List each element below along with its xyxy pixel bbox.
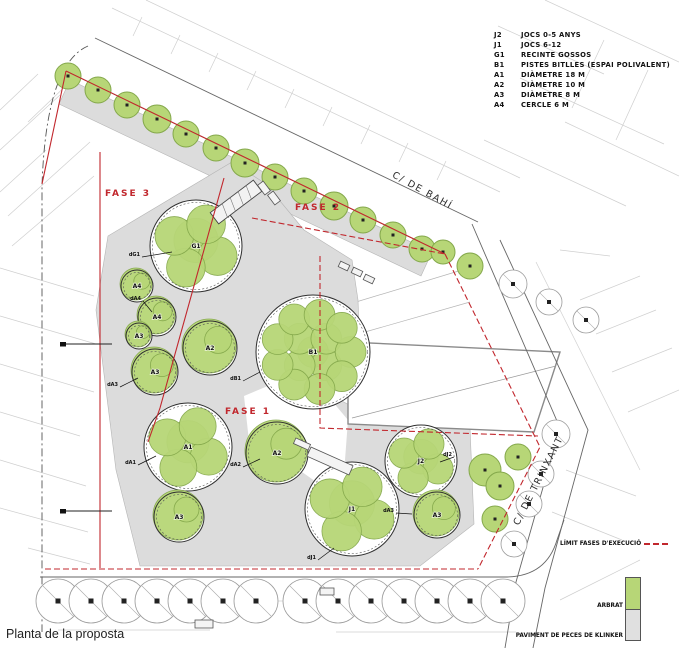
bench bbox=[195, 620, 213, 628]
feature-a3: A3 bbox=[131, 347, 178, 395]
legend-label: DIÀMETRE 8 M bbox=[521, 91, 580, 99]
legend-row: J1JOCS 6-12 bbox=[494, 40, 670, 50]
feature-label: A2 bbox=[273, 450, 282, 457]
legend: J2JOCS 0-5 ANYS J1JOCS 6-12 G1RECINTE GO… bbox=[494, 30, 670, 110]
legend-label: JOCS 0-5 ANYS bbox=[521, 31, 581, 39]
legend-row: J2JOCS 0-5 ANYS bbox=[494, 30, 670, 40]
legend-label: PISTES BITLLES (ESPAI POLIVALENT) bbox=[521, 61, 670, 69]
feature-label: A4 bbox=[153, 314, 162, 321]
legend-row: G1RECINTE GOSSOS bbox=[494, 50, 670, 60]
phase-2-label: FASE 2 bbox=[295, 203, 341, 213]
feature-b1: B1 bbox=[256, 295, 370, 409]
legend-label: CERCLE 6 M bbox=[521, 101, 569, 109]
legend-code: A3 bbox=[494, 90, 521, 100]
new-tree bbox=[380, 222, 406, 248]
legend-code: G1 bbox=[494, 50, 521, 60]
new-tree bbox=[505, 444, 531, 470]
legend-code: A1 bbox=[494, 70, 521, 80]
feature-label: A3 bbox=[135, 333, 144, 340]
new-tree bbox=[457, 253, 483, 279]
legend-row: A2DIÀMETRE 10 M bbox=[494, 80, 670, 90]
feature-label: A4 bbox=[133, 283, 142, 290]
existing-street-tree bbox=[573, 307, 599, 333]
arbrat-label: ARBRAT bbox=[540, 603, 623, 609]
legend-label: JOCS 6-12 bbox=[521, 41, 561, 49]
new-tree bbox=[486, 472, 514, 500]
callout-label: dB1 bbox=[230, 376, 241, 382]
legend-label: DIÀMETRE 18 M bbox=[521, 71, 585, 79]
feature-a3: A3 bbox=[153, 490, 204, 542]
existing-street-tree bbox=[234, 579, 278, 623]
feature-label: G1 bbox=[191, 243, 200, 250]
existing-street-tree bbox=[536, 289, 562, 315]
callout-label: dA2 bbox=[230, 462, 241, 468]
existing-street-tree bbox=[501, 531, 527, 557]
existing-building bbox=[348, 342, 560, 432]
drawing-caption: Planta de la proposta bbox=[6, 627, 124, 641]
existing-street-tree bbox=[499, 270, 527, 298]
legend-label: DIÀMETRE 10 M bbox=[521, 81, 585, 89]
phase-3-label: FASE 3 bbox=[105, 189, 151, 199]
legend-row: B1PISTES BITLLES (ESPAI POLIVALENT) bbox=[494, 60, 670, 70]
bench bbox=[363, 274, 375, 284]
section-marker bbox=[60, 509, 112, 514]
paviment-swatch bbox=[625, 609, 641, 641]
legend-code: A2 bbox=[494, 80, 521, 90]
new-tree bbox=[482, 506, 508, 532]
feature-label: A3 bbox=[175, 514, 184, 521]
legend-code: J1 bbox=[494, 40, 521, 50]
limit-fases-label: LÍMIT FASES D'EXECUCIÓ bbox=[560, 541, 668, 547]
legend-row: A4CERCLE 6 M bbox=[494, 100, 670, 110]
legend-code: A4 bbox=[494, 100, 521, 110]
paviment-label: PAVIMENT DE PECES DE KLINKER bbox=[468, 633, 623, 639]
feature-label: A2 bbox=[206, 345, 215, 352]
callout-label: dG1 bbox=[129, 252, 141, 258]
limit-fases-text: LÍMIT FASES D'EXECUCIÓ bbox=[560, 541, 641, 547]
street-bahi-label: C/ DE BAHÍ bbox=[390, 169, 455, 212]
feature-label: A1 bbox=[184, 444, 193, 451]
feature-label: J2 bbox=[417, 458, 424, 465]
callout-label: dJ2 bbox=[443, 452, 452, 458]
new-tree bbox=[143, 105, 171, 133]
legend-code: J2 bbox=[494, 30, 521, 40]
existing-street-tree bbox=[481, 579, 525, 623]
callout-label: dA4 bbox=[130, 296, 141, 302]
feature-a3: A3 bbox=[413, 490, 460, 538]
phase-1-label: FASE 1 bbox=[225, 407, 271, 417]
feature-label: A3 bbox=[151, 369, 160, 376]
bench bbox=[320, 588, 334, 595]
legend-row: A1DIÀMETRE 18 M bbox=[494, 70, 670, 80]
callout-label: dJ1 bbox=[307, 555, 316, 561]
legend-label: RECINTE GOSSOS bbox=[521, 51, 591, 59]
feature-label: B1 bbox=[309, 349, 318, 356]
callout-label: dA1 bbox=[125, 460, 136, 466]
feature-label: J1 bbox=[348, 506, 355, 513]
feature-label: A3 bbox=[433, 512, 442, 519]
feature-a2: A2 bbox=[182, 319, 237, 375]
legend-row: A3DIÀMETRE 8 M bbox=[494, 90, 670, 100]
new-tree bbox=[85, 77, 111, 103]
red-dash-sample bbox=[644, 543, 668, 545]
legend-code: B1 bbox=[494, 60, 521, 70]
callout-label: dA3 bbox=[383, 508, 394, 514]
site-plan-sheet: G1A4A4A3A3A2B1A1A2A3J1J2A3 bbox=[0, 0, 679, 648]
new-tree bbox=[350, 207, 376, 233]
feature-j2: J2 bbox=[385, 425, 457, 497]
callout-label: dA3 bbox=[107, 382, 118, 388]
feature-a2: A2 bbox=[245, 420, 308, 484]
feature-a3: A3 bbox=[125, 321, 152, 349]
arbrat-swatch bbox=[625, 577, 641, 610]
